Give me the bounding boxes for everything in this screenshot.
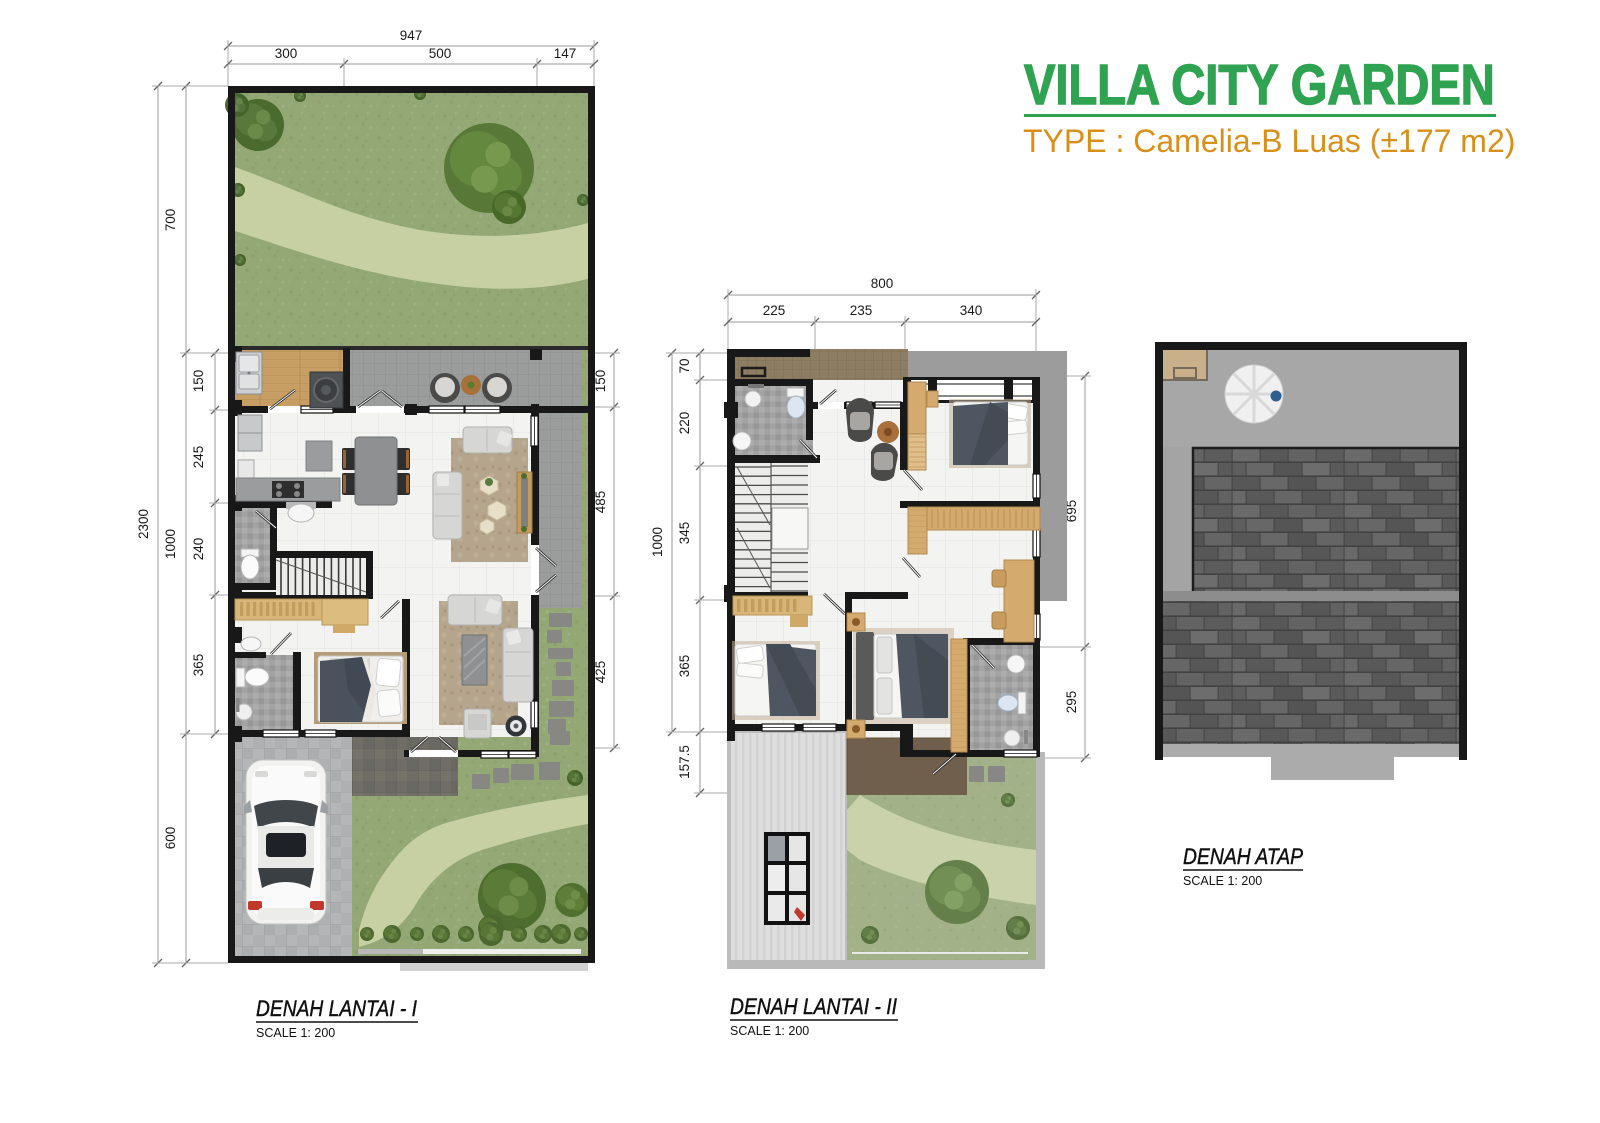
svg-text:150: 150 <box>593 370 608 393</box>
svg-text:340: 340 <box>960 303 983 318</box>
svg-text:500: 500 <box>429 46 452 61</box>
svg-text:70: 70 <box>677 358 692 373</box>
svg-text:VILLA CITY GARDEN: VILLA CITY GARDEN <box>1024 54 1495 117</box>
svg-text:245: 245 <box>191 446 206 469</box>
svg-text:240: 240 <box>191 538 206 561</box>
svg-text:2300: 2300 <box>136 509 151 539</box>
svg-text:947: 947 <box>400 28 423 43</box>
svg-text:150: 150 <box>191 370 206 393</box>
svg-text:800: 800 <box>871 276 894 291</box>
svg-text:220: 220 <box>677 412 692 435</box>
svg-text:600: 600 <box>163 827 178 850</box>
svg-text:700: 700 <box>163 209 178 232</box>
svg-text:235: 235 <box>850 303 873 318</box>
svg-text:225: 225 <box>763 303 786 318</box>
svg-text:SCALE 1: 200: SCALE 1: 200 <box>256 1026 335 1040</box>
svg-text:365: 365 <box>677 655 692 678</box>
svg-text:DENAH LANTAI - II: DENAH LANTAI - II <box>730 994 897 1019</box>
svg-text:TYPE : Camelia-B Luas (±177 m2: TYPE : Camelia-B Luas (±177 m2) <box>1023 123 1515 159</box>
svg-text:295: 295 <box>1064 691 1079 714</box>
svg-text:345: 345 <box>677 522 692 545</box>
svg-text:1000: 1000 <box>163 529 178 559</box>
svg-text:300: 300 <box>275 46 298 61</box>
svg-text:SCALE 1: 200: SCALE 1: 200 <box>730 1024 809 1038</box>
svg-text:425: 425 <box>593 661 608 684</box>
svg-text:1000: 1000 <box>650 527 665 557</box>
svg-text:157.5: 157.5 <box>677 745 692 779</box>
svg-text:485: 485 <box>593 491 608 514</box>
svg-text:SCALE 1: 200: SCALE 1: 200 <box>1183 874 1262 888</box>
svg-text:365: 365 <box>191 654 206 677</box>
svg-text:DENAH ATAP: DENAH ATAP <box>1183 844 1303 869</box>
svg-text:147: 147 <box>554 46 577 61</box>
svg-text:DENAH LANTAI - I: DENAH LANTAI - I <box>256 996 417 1021</box>
